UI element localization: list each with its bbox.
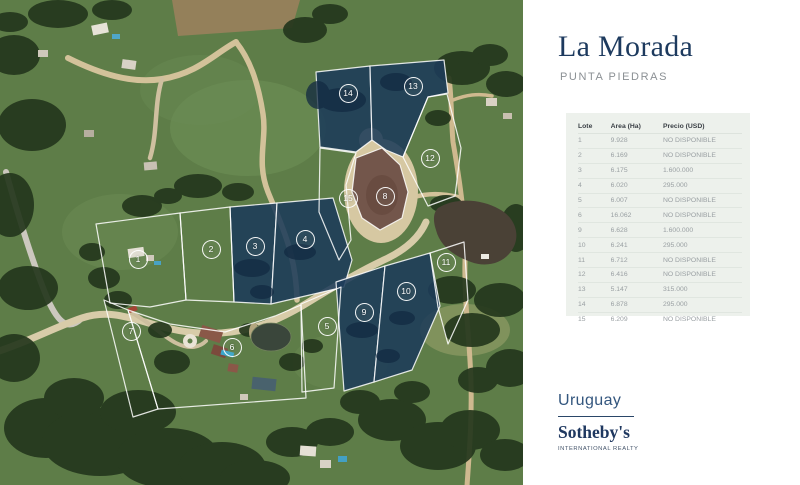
table-row: 26.169NO DISPONIBLE <box>578 149 742 164</box>
brand-divider <box>558 416 634 417</box>
table-cell-lote: 1 <box>578 137 611 144</box>
table-row: 126.416NO DISPONIBLE <box>578 268 742 283</box>
tennis-court <box>251 377 276 391</box>
lot-marker-4: 4 <box>296 230 315 249</box>
table-cell-lote: 14 <box>578 301 611 308</box>
table-row: 46.020295.000 <box>578 179 742 194</box>
brand-tagline: INTERNATIONAL REALTY <box>558 446 638 452</box>
col-header-area: Area (Ha) <box>611 123 663 130</box>
lot-marker-11: 11 <box>437 253 456 272</box>
lot-marker-15: 15 <box>339 189 358 208</box>
brand-region: Uruguay <box>558 392 638 410</box>
listing-flyer: 123456789101112131415 La Morada PUNTA PI… <box>0 0 800 485</box>
table-cell-area: 6.020 <box>611 182 663 189</box>
page-subtitle: PUNTA PIEDRAS <box>560 71 668 83</box>
lot-marker-8: 8 <box>376 187 395 206</box>
page-title: La Morada <box>558 30 693 64</box>
table-row: 156.209NO DISPONIBLE <box>578 313 742 327</box>
table-row: 616.062NO DISPONIBLE <box>578 208 742 223</box>
brand-name: Sotheby's <box>558 422 638 443</box>
lot-marker-1: 1 <box>129 250 148 269</box>
table-row: 56.007NO DISPONIBLE <box>578 194 742 209</box>
lot-marker-2: 2 <box>202 240 221 259</box>
table-cell-lote: 3 <box>578 167 611 174</box>
table-cell-lote: 9 <box>578 227 611 234</box>
table-cell-precio: 1.600.000 <box>663 167 742 174</box>
table-cell-precio: NO DISPONIBLE <box>663 316 742 323</box>
table-cell-area: 6.175 <box>611 167 663 174</box>
table-cell-lote: 15 <box>578 316 611 323</box>
table-row: 135.147315.000 <box>578 283 742 298</box>
table-cell-precio: 295.000 <box>663 182 742 189</box>
lot-marker-13: 13 <box>404 77 423 96</box>
satellite-map: 123456789101112131415 <box>0 0 523 485</box>
table-cell-lote: 6 <box>578 212 611 219</box>
brand-block: Uruguay Sotheby's INTERNATIONAL REALTY <box>558 392 638 452</box>
table-cell-precio: 1.600.000 <box>663 227 742 234</box>
table-cell-area: 6.712 <box>611 257 663 264</box>
table-row: 106.241295.000 <box>578 238 742 253</box>
lot-marker-14: 14 <box>339 84 358 103</box>
lot-marker-5: 5 <box>318 317 337 336</box>
table-cell-area: 6.169 <box>611 152 663 159</box>
table-cell-lote: 11 <box>578 257 611 264</box>
table-cell-precio: NO DISPONIBLE <box>663 257 742 264</box>
table-cell-area: 9.928 <box>611 137 663 144</box>
table-cell-precio: NO DISPONIBLE <box>663 197 742 204</box>
table-cell-precio: 315.000 <box>663 286 742 293</box>
lot-marker-6: 6 <box>223 338 242 357</box>
lot-table: Lote Area (Ha) Precio (USD) 19.928NO DIS… <box>566 113 750 316</box>
lot-marker-9: 9 <box>355 303 374 322</box>
table-cell-precio: 295.000 <box>663 301 742 308</box>
lot-marker-3: 3 <box>246 237 265 256</box>
lot-marker-12: 12 <box>421 149 440 168</box>
table-cell-area: 6.209 <box>611 316 663 323</box>
table-cell-lote: 13 <box>578 286 611 293</box>
table-row: 96.6281.600.000 <box>578 223 742 238</box>
lot-marker-7: 7 <box>122 322 141 341</box>
table-cell-precio: NO DISPONIBLE <box>663 152 742 159</box>
estate-pond <box>251 323 291 351</box>
table-row: 116.712NO DISPONIBLE <box>578 253 742 268</box>
table-cell-precio: 295.000 <box>663 242 742 249</box>
table-cell-lote: 5 <box>578 197 611 204</box>
table-cell-area: 6.007 <box>611 197 663 204</box>
table-row: 36.1751.600.000 <box>578 164 742 179</box>
table-cell-area: 6.416 <box>611 271 663 278</box>
table-cell-area: 6.241 <box>611 242 663 249</box>
table-cell-lote: 10 <box>578 242 611 249</box>
col-header-precio: Precio (USD) <box>663 123 742 130</box>
table-row: 19.928NO DISPONIBLE <box>578 134 742 149</box>
lot-table-body: 19.928NO DISPONIBLE26.169NO DISPONIBLE36… <box>578 134 742 327</box>
table-row: 146.878295.000 <box>578 298 742 313</box>
info-panel: La Morada PUNTA PIEDRAS Lote Area (Ha) P… <box>523 0 800 485</box>
table-cell-area: 6.628 <box>611 227 663 234</box>
table-cell-precio: NO DISPONIBLE <box>663 212 742 219</box>
lot-marker-10: 10 <box>397 282 416 301</box>
table-cell-area: 6.878 <box>611 301 663 308</box>
table-cell-lote: 2 <box>578 152 611 159</box>
table-cell-precio: NO DISPONIBLE <box>663 271 742 278</box>
lot-table-header: Lote Area (Ha) Precio (USD) <box>578 120 742 134</box>
table-cell-precio: NO DISPONIBLE <box>663 137 742 144</box>
table-cell-lote: 4 <box>578 182 611 189</box>
col-header-lote: Lote <box>578 123 611 130</box>
table-cell-area: 5.147 <box>611 286 663 293</box>
table-cell-area: 16.062 <box>611 212 663 219</box>
table-cell-lote: 12 <box>578 271 611 278</box>
